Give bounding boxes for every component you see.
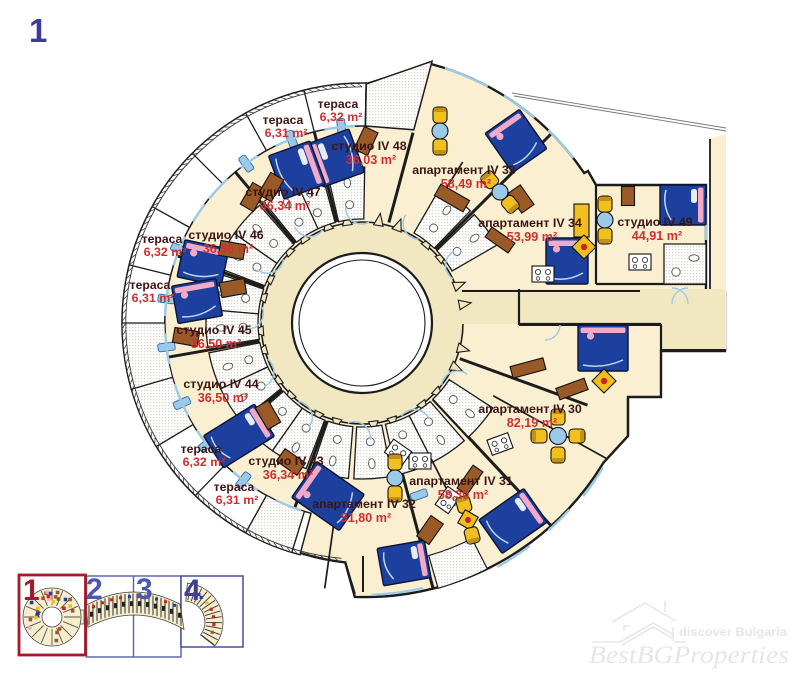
svg-text:тераса: тераса [130, 278, 171, 292]
svg-text:студио IV 47: студио IV 47 [245, 185, 320, 199]
svg-text:36,34 m²: 36,34 m² [263, 468, 313, 482]
svg-text:36,50 m²: 36,50 m² [198, 391, 248, 405]
svg-text:6,31 m²: 6,31 m² [216, 493, 259, 507]
svg-text:студио IV 49: студио IV 49 [617, 215, 692, 229]
svg-text:6,31 m²: 6,31 m² [132, 291, 175, 305]
svg-text:BestBGProperties: BestBGProperties [589, 642, 789, 669]
svg-text:тераса: тераса [318, 97, 359, 111]
svg-text:тераса: тераса [181, 442, 222, 456]
svg-text:6,32 m²: 6,32 m² [320, 110, 363, 124]
svg-text:1: 1 [29, 12, 47, 49]
svg-text:discover Bulgaria: discover Bulgaria [679, 625, 787, 639]
svg-text:44,91 m²: 44,91 m² [632, 229, 682, 243]
svg-text:58,30 m²: 58,30 m² [438, 488, 488, 502]
svg-text:51,80 m²: 51,80 m² [341, 511, 391, 525]
svg-text:82,19 m²: 82,19 m² [507, 416, 557, 430]
svg-text:36,34 m²: 36,34 m² [260, 199, 310, 213]
svg-text:апартамент IV 33: апартамент IV 33 [412, 163, 516, 177]
svg-text:36,50 m²: 36,50 m² [191, 337, 241, 351]
svg-text:53,99 m²: 53,99 m² [507, 230, 557, 244]
svg-text:1: 1 [23, 574, 40, 607]
svg-text:58,49 m²: 58,49 m² [441, 177, 491, 191]
svg-text:тераса: тераса [142, 232, 183, 246]
svg-text:студио IV 48: студио IV 48 [331, 139, 406, 153]
svg-text:тераса: тераса [214, 480, 255, 494]
svg-text:студио IV 43: студио IV 43 [248, 454, 323, 468]
svg-text:апартамент IV 32: апартамент IV 32 [312, 497, 416, 511]
svg-text:студио IV 45: студио IV 45 [176, 323, 251, 337]
svg-text:4: 4 [184, 574, 201, 607]
svg-text:апартамент IV 30: апартамент IV 30 [478, 402, 582, 416]
svg-text:2: 2 [86, 573, 103, 606]
svg-text:6,31 m²: 6,31 m² [265, 126, 308, 140]
svg-text:6,32 m²: 6,32 m² [183, 455, 226, 469]
svg-text:36,03 m²: 36,03 m² [346, 153, 396, 167]
svg-text:апартамент IV 31: апартамент IV 31 [409, 474, 513, 488]
svg-text:студио IV 44: студио IV 44 [183, 377, 258, 391]
svg-text:студио IV 46: студио IV 46 [188, 228, 263, 242]
svg-text:тераса: тераса [263, 113, 304, 127]
svg-text:апартамент IV 34: апартамент IV 34 [478, 216, 582, 230]
svg-text:6,32 m²: 6,32 m² [144, 245, 187, 259]
svg-text:3: 3 [136, 573, 153, 606]
svg-text:36,50 m²: 36,50 m² [203, 242, 253, 256]
